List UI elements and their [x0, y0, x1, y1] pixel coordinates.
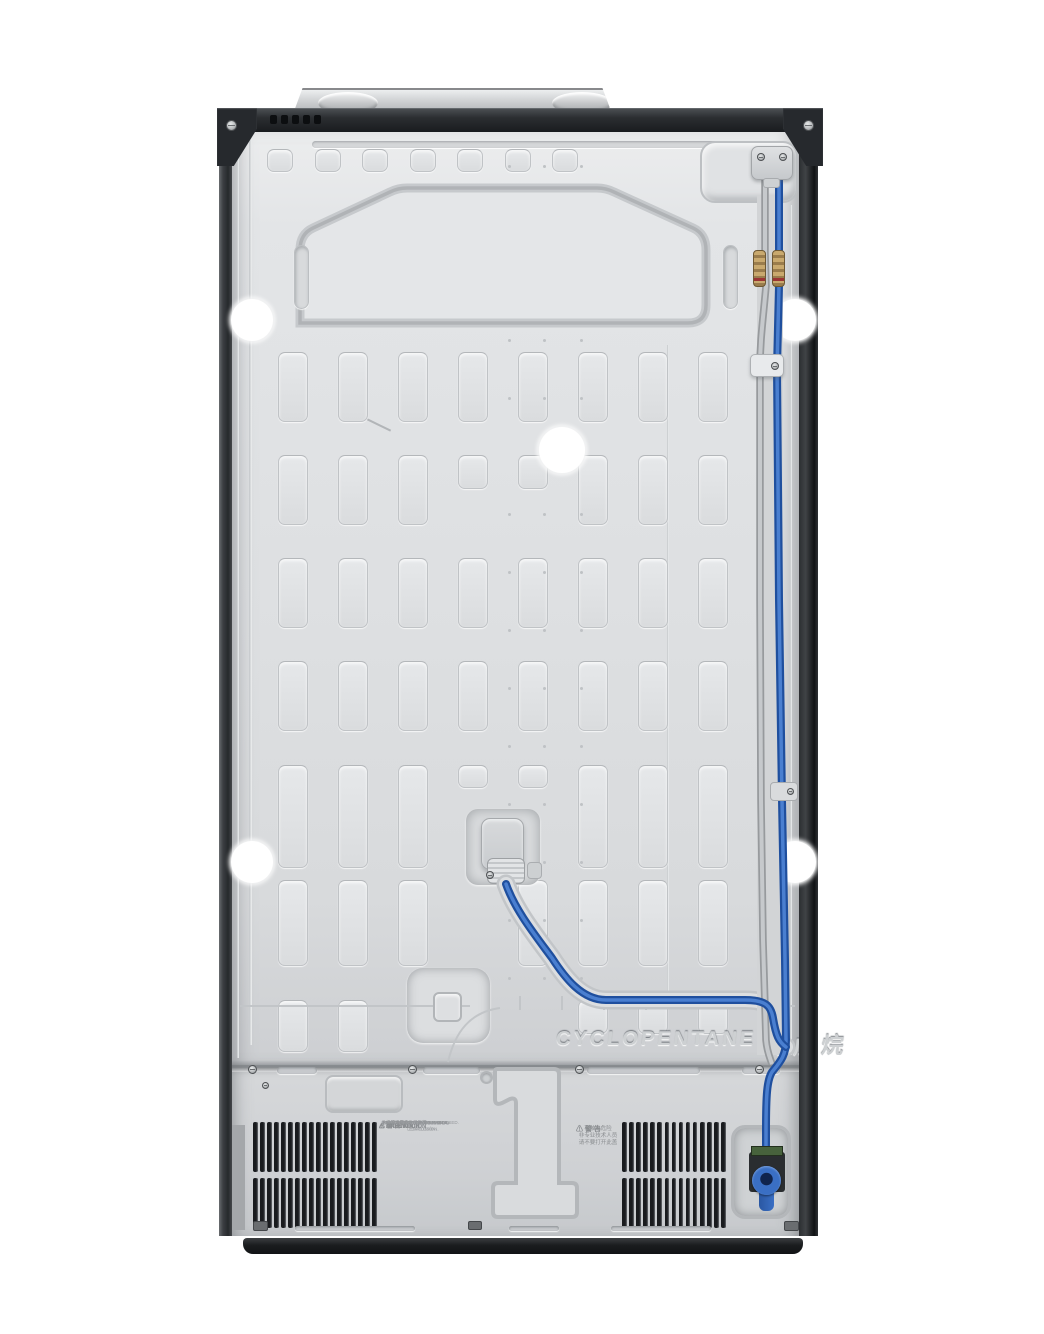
screw-icon — [803, 120, 814, 131]
water-line-tubing — [0, 0, 1044, 1334]
screw-icon — [779, 153, 787, 161]
tube-clip-lower — [770, 782, 798, 801]
water-inlet-fitting — [752, 1166, 781, 1195]
water-line-top-connector — [751, 146, 793, 180]
refrigerator-back-photo: CYCLOPENTANE环戊烷 ⚠ 警 告本机使用可燃性发泡剂维修须由专业人员进… — [0, 0, 1044, 1334]
screw-icon — [226, 120, 237, 131]
screw-icon — [771, 362, 779, 370]
screw-icon — [787, 788, 794, 795]
brass-coupling-right — [772, 250, 785, 287]
screw-icon — [757, 153, 765, 161]
connector-tab — [763, 178, 780, 188]
tube-channel-groove — [506, 884, 786, 1047]
water-valve-pcb — [751, 1146, 783, 1156]
brass-coupling-left — [753, 250, 766, 287]
tube-clip-upper — [750, 354, 784, 377]
